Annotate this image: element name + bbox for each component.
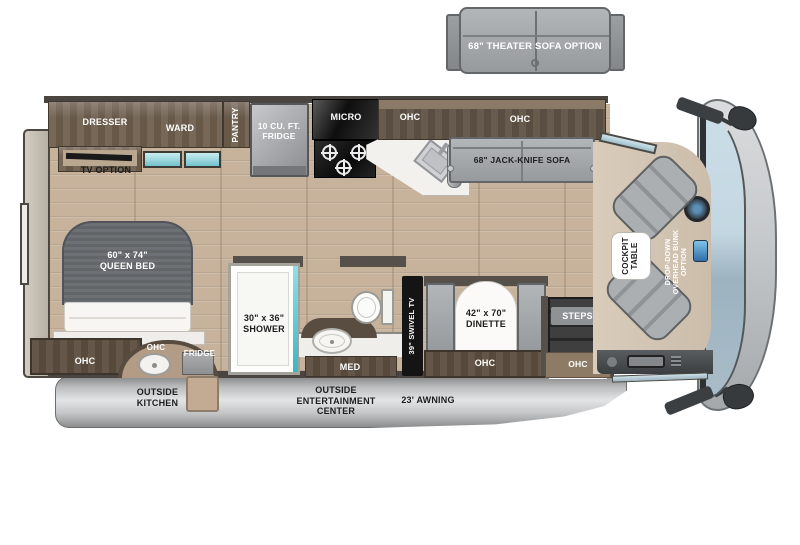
bedroom-cabinets <box>48 101 250 148</box>
toilet-bowl <box>351 291 382 324</box>
queen-bed-mattress <box>62 221 193 305</box>
fridge-vent <box>253 166 306 175</box>
awning-band <box>55 376 627 428</box>
cockpit-table <box>611 232 651 280</box>
dinette-bench-left <box>426 283 455 353</box>
theater-sofa-seat-line <box>463 35 609 37</box>
bedroom-window-2 <box>184 151 221 168</box>
shower-glass <box>293 266 298 372</box>
pantry-divider <box>222 102 224 147</box>
queen-bed-sheets <box>64 302 191 333</box>
theater-sofa-handle <box>531 59 539 67</box>
toilet-tank <box>381 289 394 325</box>
dashboard <box>597 350 713 374</box>
dinette-ohc <box>424 350 546 378</box>
sofa-hinge-left <box>447 165 454 172</box>
sofa-divider <box>521 141 523 181</box>
outside-kitchen-door <box>186 376 219 412</box>
outside-sink-drain <box>152 363 157 368</box>
dash-vents <box>671 356 681 367</box>
shower-pan <box>237 272 289 366</box>
dash-screen <box>627 355 665 368</box>
dash-gauge <box>607 357 617 367</box>
rear-window <box>20 203 29 285</box>
bath-wall-right <box>340 256 406 267</box>
swivel-tv <box>402 276 423 376</box>
toilet-seat <box>357 297 376 318</box>
theater-sofa <box>459 7 611 74</box>
shower <box>228 263 300 375</box>
burner-1 <box>322 145 337 160</box>
outside-kitchen-sink <box>138 353 171 376</box>
living-ohc-band <box>378 99 606 140</box>
burner-3 <box>336 160 351 175</box>
burner-2 <box>351 145 366 160</box>
vanity-sink-drain <box>330 340 334 344</box>
jack-knife-sofa <box>449 137 595 183</box>
vanity-sink <box>312 328 352 354</box>
dinette-table <box>455 281 517 355</box>
outside-kitchen-fridge <box>182 352 214 375</box>
rv-floor-plan: 68" THEATER SOFA OPTION OUTSIDE KITCHEN … <box>0 0 800 545</box>
microwave <box>312 99 379 140</box>
med-cabinet <box>305 356 397 377</box>
kitchen-fridge <box>250 103 309 177</box>
sheet-fold-line <box>69 317 186 319</box>
bedroom-window-1 <box>143 151 182 168</box>
cab-console <box>693 240 708 262</box>
